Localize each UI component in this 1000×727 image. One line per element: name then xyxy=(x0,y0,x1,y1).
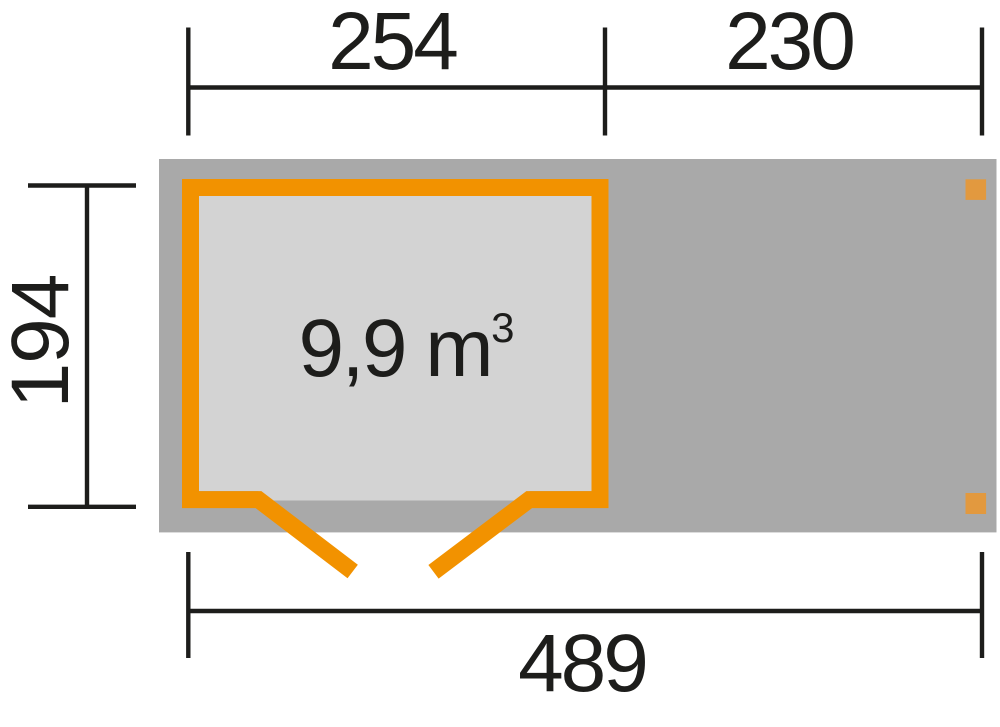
svg-text:489: 489 xyxy=(518,618,646,709)
svg-text:230: 230 xyxy=(725,0,853,87)
svg-text:9,9 m3: 9,9 m3 xyxy=(299,303,515,394)
svg-text:254: 254 xyxy=(328,0,457,87)
svg-text:194: 194 xyxy=(0,275,86,409)
